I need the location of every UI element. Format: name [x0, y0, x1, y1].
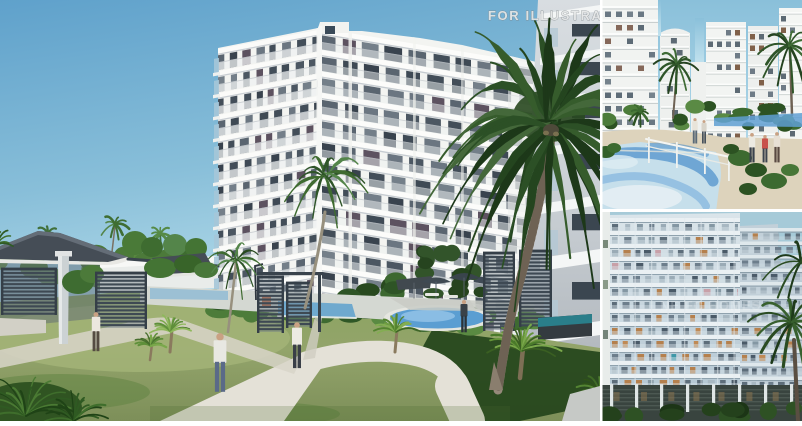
- svg-text:FOR ILLUSTRAT: FOR ILLUSTRAT: [488, 8, 611, 23]
- svg-text:NE FC HOMES: NE FC HOMES: [660, 298, 761, 313]
